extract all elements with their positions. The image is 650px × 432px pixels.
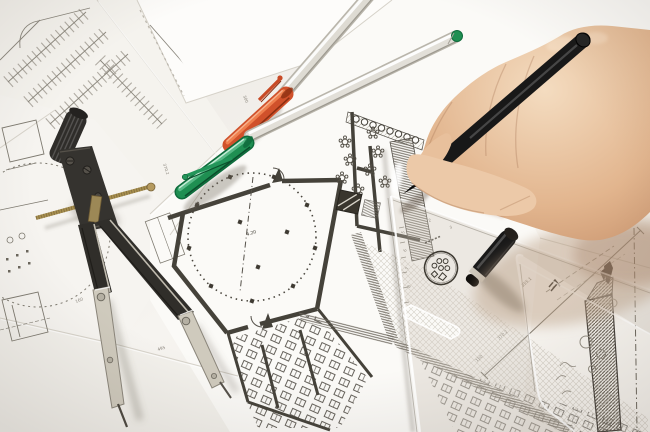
photo-architect-drafting-scene: 160 4.20 — [0, 0, 650, 432]
vignette-overlay — [0, 0, 650, 432]
scene-canvas: 160 4.20 — [0, 0, 650, 432]
